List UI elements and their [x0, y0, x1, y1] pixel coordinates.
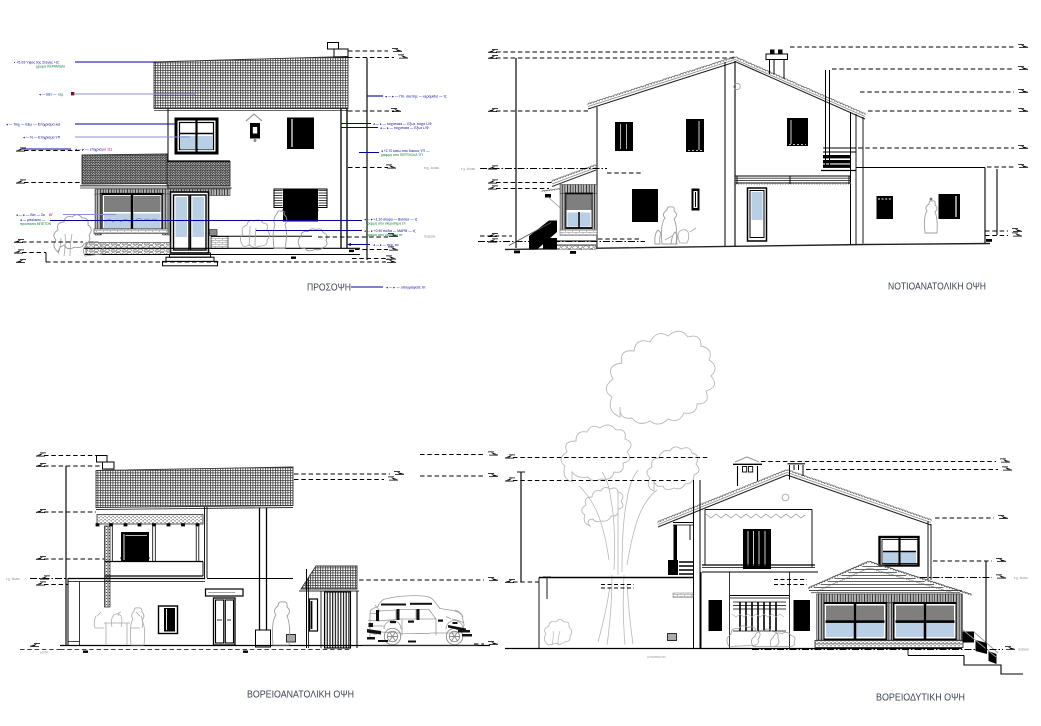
svg-text:◂ — ▸ — περ. τοι: ◂ — ▸ — περ. τοι [373, 243, 399, 247]
svg-text:◂ — ▸ — υπογραψατε τπ: ◂ — ▸ — υπογραψατε τπ [386, 286, 426, 290]
svg-text:◂ — ▸ — τοιχοποιια — Εξωτ L/Φ: ◂ — ▸ — τοιχοποιια — Εξωτ L/Φ [380, 126, 429, 130]
svg-text:◂ — ▸ — Βετ — Σκ: ◂ — ▸ — Βετ — Σκ [16, 213, 45, 217]
svg-text:◂ — Τοιχ — Εξω — Επιχρισμα και: ◂ — Τοιχ — Εξω — Επιχρισμα και [6, 123, 60, 127]
svg-text:α 111: α 111 [104, 148, 113, 152]
svg-text:τ.χ. λευκο: τ.χ. λευκο [1014, 576, 1028, 580]
svg-text:ΞΥΛΟΠΗΚΤΟ: ΞΥΛΟΠΗΚΤΟ [647, 655, 666, 659]
svg-text:πεζούλι: πεζούλι [424, 235, 436, 239]
svg-text:γραμμη απο μαρμαρο τπ: γραμμη απο μαρμαρο τπ [366, 233, 403, 237]
svg-text:χρωμα ΚΕΡΑΜΙΔΙα: χρωμα ΚΕΡΑΜΙΔΙα [36, 64, 65, 68]
svg-text:ΒΟΡΕΙΟΑΝΑΤΟΛΙΚΗ ΟΨΗ: ΒΟΡΕΙΟΑΝΑΤΟΛΙΚΗ ΟΨΗ [247, 690, 354, 701]
svg-text:τεχ. λευκό: τεχ. λευκό [424, 166, 439, 170]
svg-text:προστασια ΜΠΕΤΟΝ: προστασια ΜΠΕΤΟΝ [20, 222, 52, 226]
svg-text:ΠΡΟΣΟΨΗ: ΠΡΟΣΟΨΗ [307, 283, 351, 294]
svg-text:◂ — Βετ —: ◂ — Βετ — [39, 93, 57, 97]
svg-text:ΒΟΡΕΙΟΔΥΤΙΚΗ ΟΨΗ: ΒΟΡΕΙΟΔΥΤΙΚΗ ΟΨΗ [876, 693, 965, 704]
svg-text:◂ — Ν — Επιχρισμα ΥΠ: ◂ — Ν — Επιχρισμα ΥΠ [23, 136, 61, 140]
svg-text:πεζουλι: πεζουλι [1018, 648, 1029, 652]
svg-text:τ.χ. λευκο: τ.χ. λευκο [6, 577, 20, 581]
svg-text:τ.χ. λευκο: τ.χ. λευκο [461, 167, 475, 171]
svg-text:κερ.: κερ. [58, 93, 64, 97]
svg-text:ΝΟΤΙΟΑΝΑΤΟΛΙΚΗ ΟΨΗ: ΝΟΤΙΟΑΝΑΤΟΛΙΚΗ ΟΨΗ [888, 282, 986, 293]
svg-text:γραμμη απο σκυροδεμα τπ: γραμμη απο σκυροδεμα τπ [366, 221, 406, 225]
svg-text:◂ — ▸ — ΠΛ. σκεπης — κεραμιδια: ◂ — ▸ — ΠΛ. σκεπης — κεραμιδια — τζ [385, 95, 447, 99]
svg-text:±0.00: ±0.00 [40, 651, 48, 655]
svg-text:ΒΓ: ΒΓ [49, 213, 53, 217]
svg-text:◂ — ▸ — επιχρισμ: ◂ — ▸ — επιχρισμ [75, 148, 104, 152]
svg-text:γραμμη απο ΠΕΡΓΚΟΛΑ ΥΠ: γραμμη απο ΠΕΡΓΚΟΛΑ ΥΠ [381, 153, 423, 157]
